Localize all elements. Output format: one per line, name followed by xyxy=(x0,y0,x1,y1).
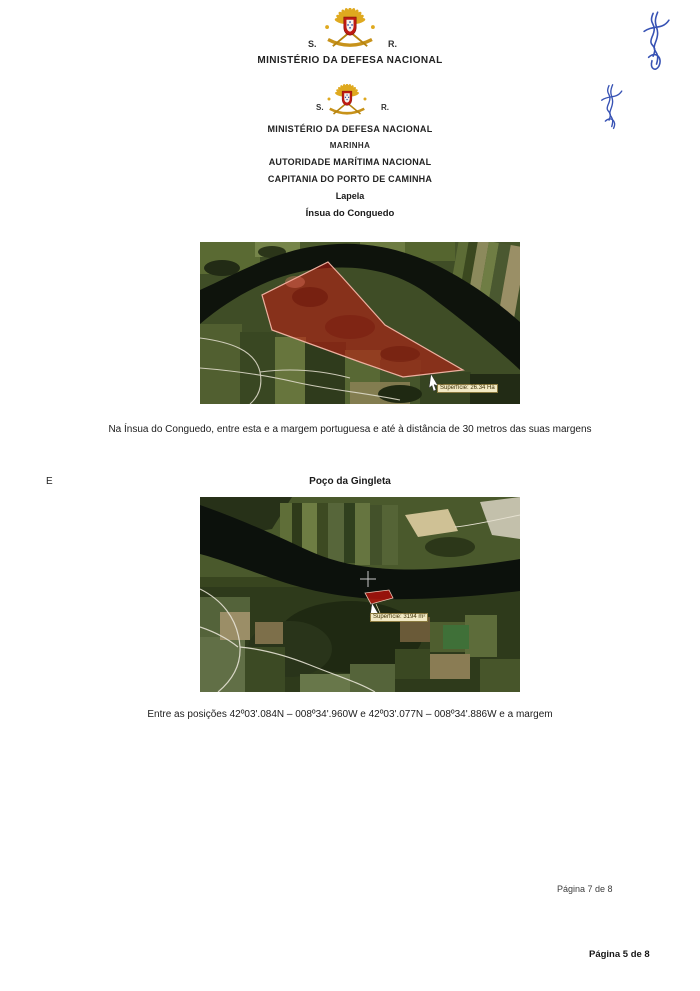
navy-label: MARINHA xyxy=(0,141,700,150)
fields-bottom xyxy=(200,587,520,692)
satellite-map-poco-da-gingleta: Superfície: 3194 m² xyxy=(200,497,520,692)
page-number: Página 5 de 8 xyxy=(589,949,650,960)
crest-left-initial: S. xyxy=(316,103,324,112)
crest-right-initial: R. xyxy=(381,103,389,112)
section2-caption: Entre as posições 42º03'.084N – 008º34'.… xyxy=(0,709,700,720)
scanned-document-page: S. R. MINISTÉRIO DA DEFESA NACIONAL xyxy=(0,0,700,991)
satellite-map-insua-do-conguedo: Superfície: 26.34 Ha xyxy=(200,242,520,404)
national-crest-icon xyxy=(317,8,383,50)
surface-area-label: Superfície: 26.34 Ha xyxy=(437,384,498,393)
crest-left-initial: S. xyxy=(308,39,317,49)
national-crest-icon xyxy=(321,84,373,117)
ministry-title: MINISTÉRIO DA DEFESA NACIONAL xyxy=(0,124,700,134)
page-note: Página 7 de 8 xyxy=(557,884,613,894)
section1-site-heading: Ínsua do Conguedo xyxy=(0,208,700,219)
maritime-authority-label: AUTORIDADE MARÍTIMA NACIONAL xyxy=(0,157,700,167)
handwritten-initials-icon xyxy=(628,10,676,72)
ministry-title: MINISTÉRIO DA DEFESA NACIONAL xyxy=(0,55,700,66)
harbour-office-label: CAPITANIA DO PORTO DE CAMINHA xyxy=(0,174,700,184)
section1-place-heading: Lapela xyxy=(0,191,700,201)
surface-area-label: Superfície: 3194 m² xyxy=(370,613,428,622)
section1-caption: Na Ínsua do Conguedo, entre esta e a mar… xyxy=(0,424,700,435)
section2-site-heading: Poço da Gingleta xyxy=(0,476,700,487)
crest-right-initial: R. xyxy=(388,39,397,49)
